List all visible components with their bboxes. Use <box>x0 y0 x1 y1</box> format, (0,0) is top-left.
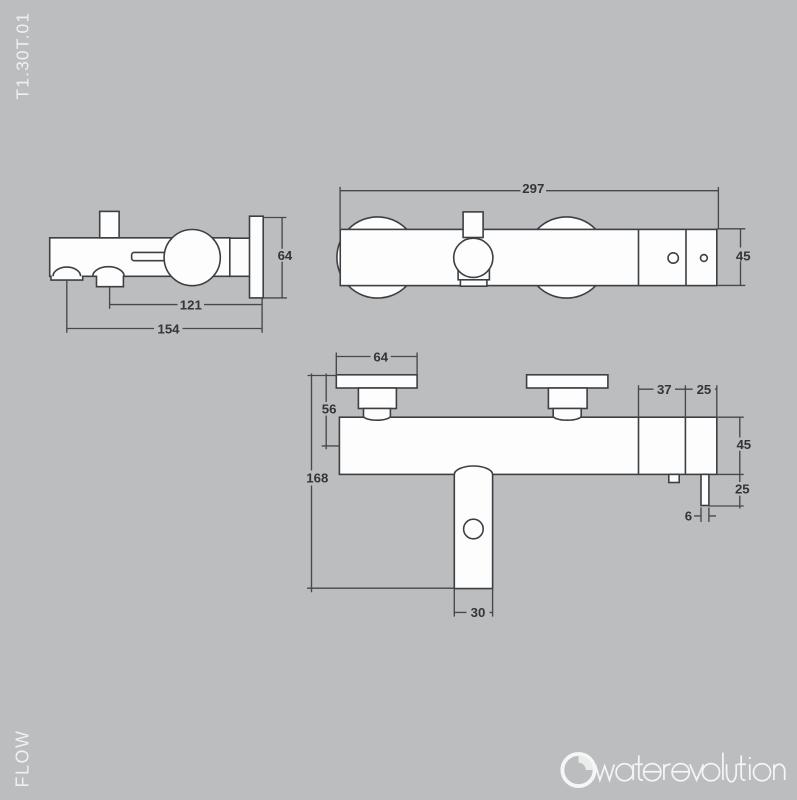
svg-text:297: 297 <box>522 181 544 196</box>
svg-text:45: 45 <box>736 248 751 263</box>
svg-text:FLOW: FLOW <box>13 730 33 788</box>
svg-text:30: 30 <box>471 605 486 620</box>
svg-text:6: 6 <box>685 509 692 524</box>
svg-text:64: 64 <box>373 349 388 364</box>
svg-text:45: 45 <box>736 437 751 452</box>
svg-text:T1.30T.01: T1.30T.01 <box>13 12 33 100</box>
svg-text:25: 25 <box>735 482 750 497</box>
svg-text:154: 154 <box>157 321 180 336</box>
svg-text:56: 56 <box>322 401 337 416</box>
svg-text:168: 168 <box>306 471 328 486</box>
svg-text:25: 25 <box>697 382 712 397</box>
svg-text:37: 37 <box>657 382 672 397</box>
svg-text:64: 64 <box>278 248 293 263</box>
svg-text:121: 121 <box>180 297 202 312</box>
